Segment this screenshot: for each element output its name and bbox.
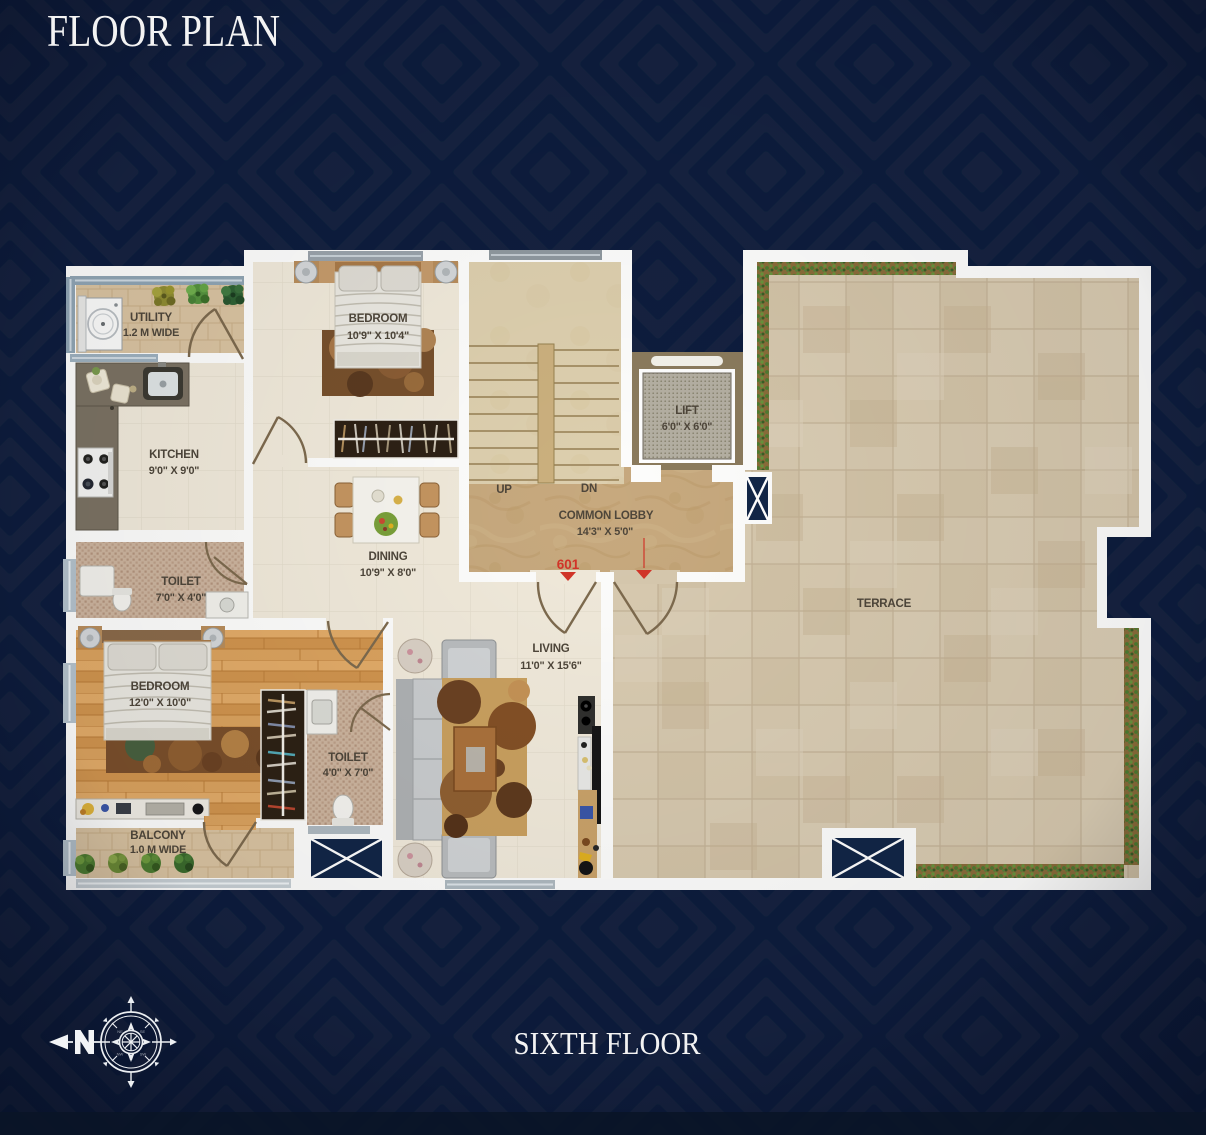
svg-text:NE: NE <box>117 1029 123 1034</box>
svg-text:E: E <box>130 1026 133 1031</box>
svg-text:SIXTH FLOOR: SIXTH FLOOR <box>514 1025 702 1061</box>
svg-text:FLOOR PLAN: FLOOR PLAN <box>47 6 280 56</box>
svg-text:NW: NW <box>117 1052 124 1057</box>
svg-text:W: W <box>129 1056 133 1061</box>
svg-text:SW: SW <box>140 1052 147 1057</box>
svg-text:N: N <box>116 1040 119 1045</box>
svg-text:S: S <box>144 1040 147 1045</box>
svg-text:SE: SE <box>140 1029 146 1034</box>
